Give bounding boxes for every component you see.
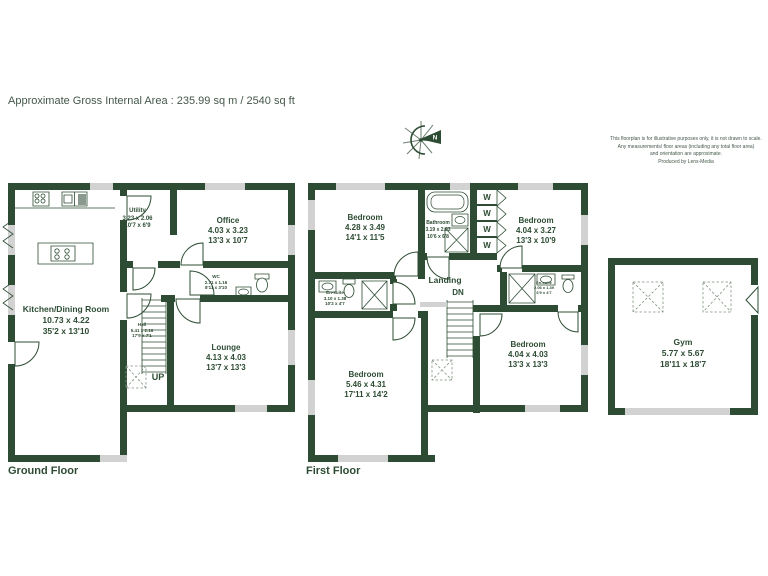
disclaimer-line-1: This floorplan is for illustrative purpo… — [606, 136, 766, 144]
room-label-landing: Landing — [416, 275, 474, 286]
room-name: Utility — [110, 208, 165, 216]
room-dim-metric: 3.23 x 2.06 — [110, 216, 165, 224]
windows — [625, 408, 730, 415]
room-dim-imperial: 10'2 x 4'7 — [314, 301, 356, 307]
room-dim-metric: 3.19 x 2.03 — [417, 227, 459, 234]
room-label-bedroom-right: Bedroom 4.04 x 3.27 13'3 x 10'9 — [492, 216, 580, 247]
room-label-bedroom-back: Bedroom 4.04 x 4.03 13'3 x 13'3 — [477, 340, 579, 371]
understairs-dashed-symbol — [126, 366, 146, 388]
wc-sink-bowl — [239, 289, 249, 295]
room-dim-metric: 4.03 x 3.23 — [178, 226, 278, 236]
room-label-wc: WC 2.71 x 1.16 8'11 x 3'10 — [196, 274, 236, 291]
room-name: Bedroom — [477, 340, 579, 350]
room-label-bedroom-main: Bedroom 5.46 x 4.31 17'11 x 14'2 — [315, 370, 417, 401]
room-dim-imperial: 13'3 x 10'9 — [492, 236, 580, 246]
room-dim-imperial: 13'3 x 10'7 — [178, 236, 278, 246]
landing-balustrade — [420, 302, 447, 307]
room-name: Bedroom — [315, 213, 415, 223]
room-name: Bedroom — [492, 216, 580, 226]
disclaimer-line-2: Any measurements/ floor areas (including… — [606, 144, 766, 152]
room-dim-imperial: 17'11 x 14'2 — [315, 390, 417, 400]
floorplan-graphics: N — [0, 0, 768, 576]
room-label-ensuite-second: En-suite 2.06 x 1.39 6'9 x 4'7 — [526, 281, 562, 295]
room-label-bedroom-front: Bedroom 4.28 x 3.49 14'1 x 11'5 — [315, 213, 415, 244]
room-label-ensuite-main: En-suite 3.10 x 1.38 10'2 x 4'7 — [314, 290, 356, 307]
wardrobe-label-4: W — [478, 238, 496, 253]
disclaimer-text: This floorplan is for illustrative purpo… — [606, 136, 766, 166]
room-label-office: Office 4.03 x 3.23 13'3 x 10'7 — [178, 216, 278, 247]
ensuite-second-toilet-bowl — [563, 280, 573, 293]
room-name: Landing — [416, 275, 474, 286]
landing-rooflight-dashed — [432, 360, 452, 380]
room-dim-imperial: 6'9 x 4'7 — [526, 291, 562, 296]
room-dim-imperial: 17'9 x 7'1 — [124, 333, 160, 339]
wardrobe-label-2: W — [478, 206, 496, 221]
rooflights-dashed — [633, 282, 731, 312]
room-dim-metric: 5.46 x 4.31 — [315, 380, 417, 390]
room-name: Kitchen/Dining Room — [10, 304, 122, 315]
room-name: Bathroom — [417, 220, 459, 227]
room-dim-metric: 10.73 x 4.22 — [10, 315, 122, 326]
compass-icon: N — [403, 121, 441, 159]
ground-floor-caption: Ground Floor — [8, 465, 148, 477]
wardrobe-label-3: W — [478, 222, 496, 237]
first-floor-caption: First Floor — [306, 465, 446, 477]
room-dim-metric: 5.77 x 5.67 — [628, 348, 738, 359]
room-dim-imperial: 10'7 x 6'9 — [110, 223, 165, 231]
room-dim-imperial: 13'7 x 13'3 — [170, 363, 282, 373]
room-dim-metric: 4.28 x 3.49 — [315, 223, 415, 233]
stairs-up-label: UP — [148, 372, 168, 384]
room-dim-imperial: 35'2 x 13'10 — [10, 326, 122, 337]
room-name: Gym — [628, 337, 738, 348]
room-label-gym: Gym 5.77 x 5.67 18'11 x 18'7 — [628, 337, 738, 370]
sink-appliance-fill — [78, 194, 86, 205]
floorplan-page: N Approximate Gross Internal Area : 235.… — [0, 0, 768, 576]
room-label-hall: Hall 5.41 x 2.16 17'9 x 7'1 — [124, 322, 160, 339]
compass-north-label: N — [433, 135, 438, 142]
compass-center-dot — [419, 138, 423, 142]
room-label-bathroom: Bathroom 3.19 x 2.03 10'6 x 6'8 — [417, 220, 459, 240]
room-dim-metric: 4.13 x 4.03 — [170, 353, 282, 363]
room-dim-imperial: 13'3 x 13'3 — [477, 360, 579, 370]
wc-toilet-bowl — [257, 278, 268, 292]
room-dim-metric: 4.04 x 3.27 — [492, 226, 580, 236]
disclaimer-line-3: and orientation are approximate. — [606, 151, 766, 159]
door-notch — [746, 287, 758, 313]
ensuite-main-sink-bowl — [322, 283, 333, 290]
room-dim-imperial: 8'11 x 3'10 — [196, 285, 236, 291]
room-name: Lounge — [170, 343, 282, 353]
room-dim-metric: 4.04 x 4.03 — [477, 350, 579, 360]
disclaimer-line-4: Produced by Lens-Media — [606, 159, 766, 167]
room-label-utility: Utility 3.23 x 2.06 10'7 x 6'9 — [110, 208, 165, 231]
room-name: Bedroom — [315, 370, 417, 380]
room-label-kitchen: Kitchen/Dining Room 10.73 x 4.22 35'2 x … — [10, 304, 122, 337]
room-label-lounge: Lounge 4.13 x 4.03 13'7 x 13'3 — [170, 343, 282, 374]
room-dim-imperial: 14'1 x 11'5 — [315, 233, 415, 243]
room-name: Office — [178, 216, 278, 226]
area-summary-text: Approximate Gross Internal Area : 235.99… — [8, 95, 428, 107]
stairs-down-label: DN — [447, 288, 469, 298]
room-dim-imperial: 18'11 x 18'7 — [628, 359, 738, 370]
wardrobe-label-1: W — [478, 190, 496, 205]
room-dim-imperial: 10'6 x 6'8 — [417, 234, 459, 241]
